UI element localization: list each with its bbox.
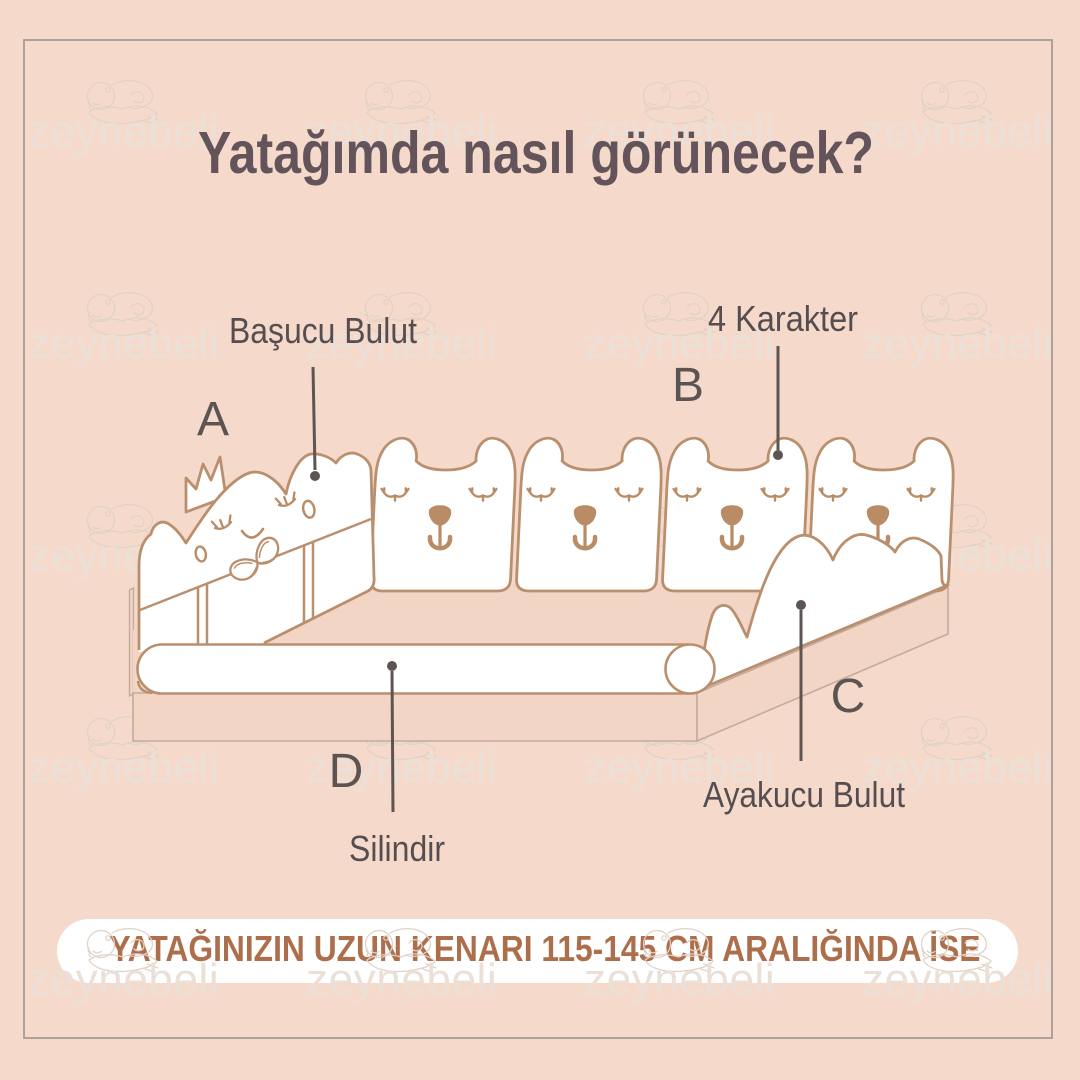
- svg-text:Silindir: Silindir: [349, 828, 445, 869]
- svg-text:4 Karakter: 4 Karakter: [708, 298, 858, 339]
- svg-text:B: B: [672, 359, 704, 412]
- svg-text:A: A: [197, 393, 229, 446]
- svg-text:C: C: [831, 670, 866, 723]
- svg-text:Başucu Bulut: Başucu Bulut: [229, 310, 417, 351]
- svg-text:YATAĞINIZIN UZUN KENARI 115-14: YATAĞINIZIN UZUN KENARI 115-145 CM ARALI…: [110, 928, 981, 969]
- svg-text:D: D: [329, 745, 364, 798]
- svg-text:Ayakucu Bulut: Ayakucu Bulut: [703, 774, 905, 815]
- svg-text:Yatağımda nasıl görünecek?: Yatağımda nasıl görünecek?: [198, 120, 874, 186]
